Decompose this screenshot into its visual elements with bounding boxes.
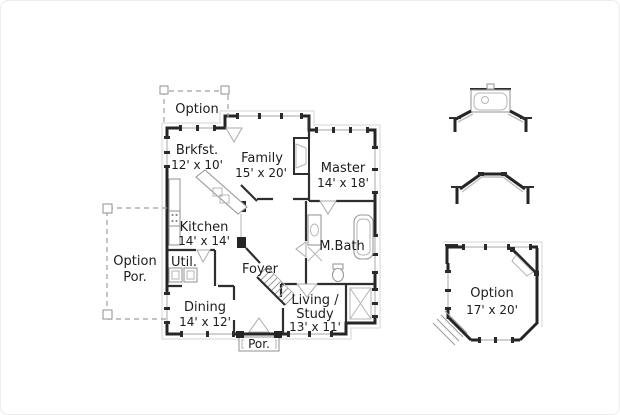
corner-fireplace [510,247,539,276]
room-label-mbath: M.Bath [319,239,365,254]
utility-appliances [169,268,197,282]
room-dims-brkfst: 12' x 10' [171,158,223,172]
room-dims-dining: 14' x 12' [179,315,231,329]
room-label-family: Family [241,151,283,166]
floorplan-page: Option Brkfst. 12' x 10' Family 15' x 20… [0,0,620,415]
window-seat-bay [350,288,371,319]
detail-window-bay [451,172,534,204]
room-label-util: Util. [171,255,197,270]
room-dims-master: 14' x 18' [317,176,369,190]
room-label-living: Living / [291,293,339,308]
room-label-option-right: Option [470,286,513,301]
room-dims-kitchen: 14' x 14' [178,234,230,248]
door-swing [296,242,306,257]
room-label-option-por-2: Por. [123,270,147,285]
room-dims-option-right: 17' x 20' [466,303,518,317]
room-label-brkfst: Brkfst. [176,143,218,158]
room-label-foyer: Foyer [242,262,279,277]
room-label-kitchen: Kitchen [180,220,229,235]
room-label-por: Por. [248,337,270,351]
stair-hatch [433,311,467,345]
room-label-option-por: Option [113,254,156,269]
room-label-dining: Dining [184,300,226,315]
door-swing [320,201,336,214]
room-dims-living: 13' x 11' [289,320,341,334]
floorplan-canvas: Option Brkfst. 12' x 10' Family 15' x 20… [1,1,619,414]
toilet [333,264,344,282]
room-label-option-top: Option [175,102,218,117]
door-swing [197,250,210,262]
detail-tub-bay [449,84,532,132]
door-swing [249,318,269,332]
fireplace [294,138,309,174]
room-label-master: Master [321,161,366,176]
room-dims-family: 15' x 20' [235,166,287,180]
door-swing [226,128,242,142]
main-plan [103,86,380,351]
cased-opening-jamb [237,237,246,248]
stove [169,211,180,226]
